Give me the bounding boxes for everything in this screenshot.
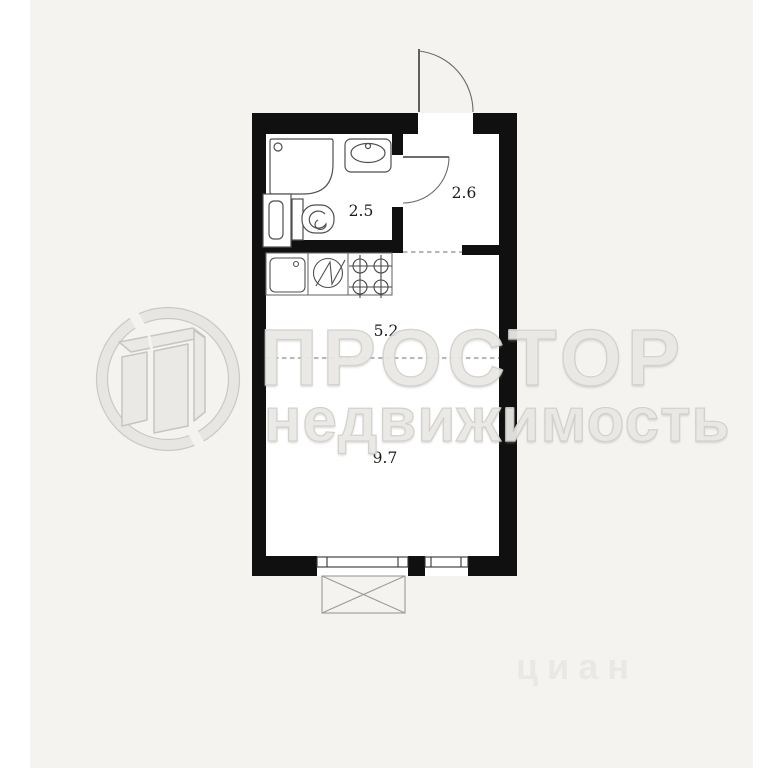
floorplan-drawing: 2.5 2.6 5.2 9.7 — [0, 0, 766, 768]
wall-bottom-right — [468, 556, 517, 576]
shower-drain-icon — [274, 143, 282, 151]
kitchen-area-label: 5.2 — [374, 322, 399, 340]
entrance-door-icon — [419, 49, 473, 112]
wall-bathroom-right-upper — [392, 134, 403, 155]
kitchen-sink-tap-icon — [294, 262, 299, 267]
wall-left — [252, 113, 266, 576]
living-area-label: 9.7 — [373, 449, 398, 467]
windows — [317, 557, 468, 567]
kitchen-sink-icon — [270, 258, 305, 292]
hallway-area-label: 2.6 — [452, 184, 477, 202]
wall-hallway-stub — [462, 245, 499, 255]
balcony-icon — [322, 576, 405, 613]
wall-right — [499, 113, 517, 576]
wall-bottom-left — [252, 556, 317, 576]
wall-bottom-middle — [408, 556, 425, 576]
toilet-cistern-icon — [292, 199, 303, 240]
bathroom-area-label: 2.5 — [349, 202, 374, 220]
washbasin-tap-icon — [366, 144, 371, 149]
prostor-logo-icon — [97, 306, 240, 452]
kitchen-fixtures — [266, 253, 392, 298]
balcony-window-icon — [317, 557, 408, 567]
bathroom-door-opening — [392, 155, 403, 207]
wall-top-left — [252, 113, 418, 134]
floorplan-screenshot: 2.5 2.6 5.2 9.7 ПРОСТОР недвижимость циа… — [0, 0, 766, 768]
entrance-opening — [418, 113, 473, 134]
bathroom-cabinet-door-icon — [269, 201, 283, 239]
